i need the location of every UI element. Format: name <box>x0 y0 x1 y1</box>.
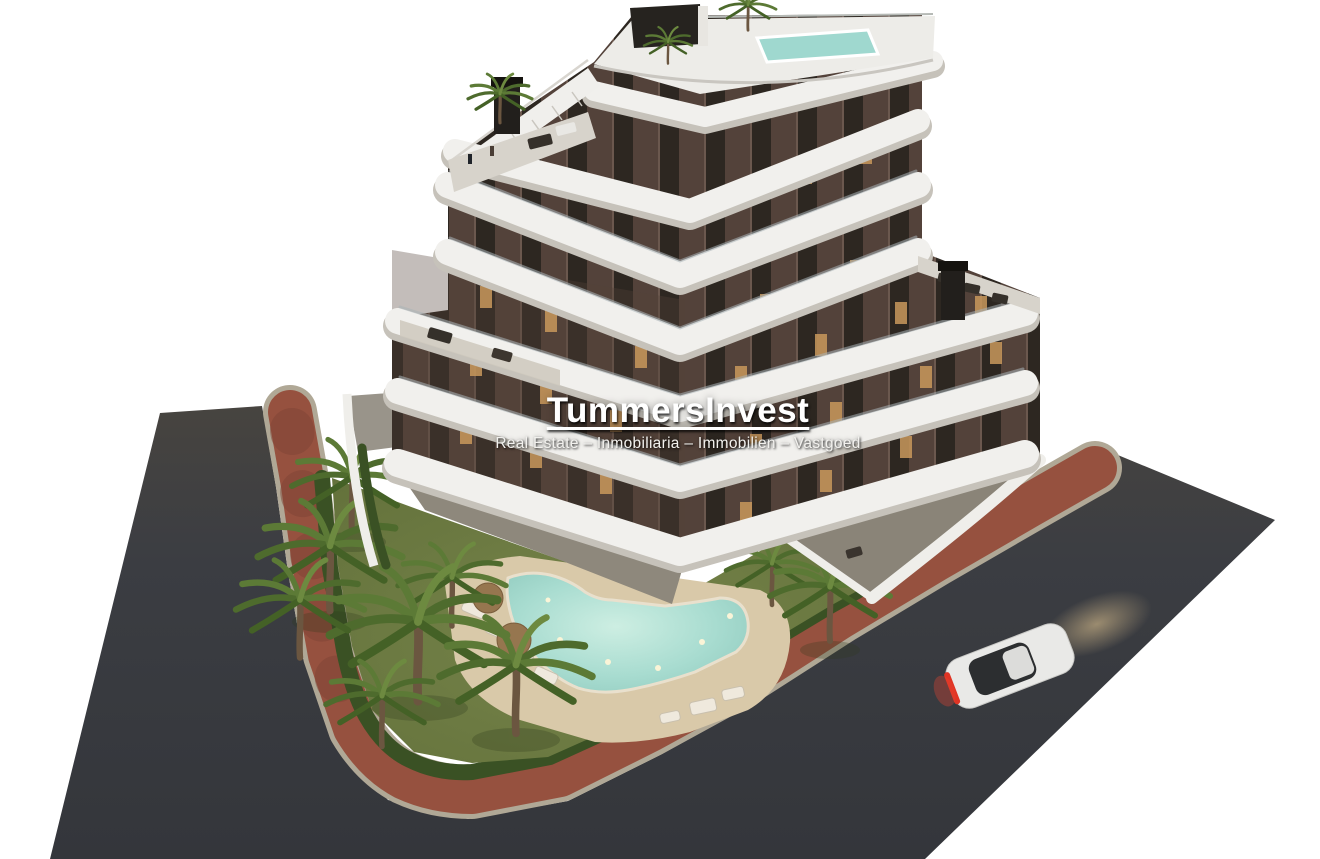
apartment-building <box>392 0 1040 560</box>
render-scene <box>0 0 1320 859</box>
property-render-image: TummersInvest Real Estate – Inmobiliaria… <box>0 0 1320 859</box>
